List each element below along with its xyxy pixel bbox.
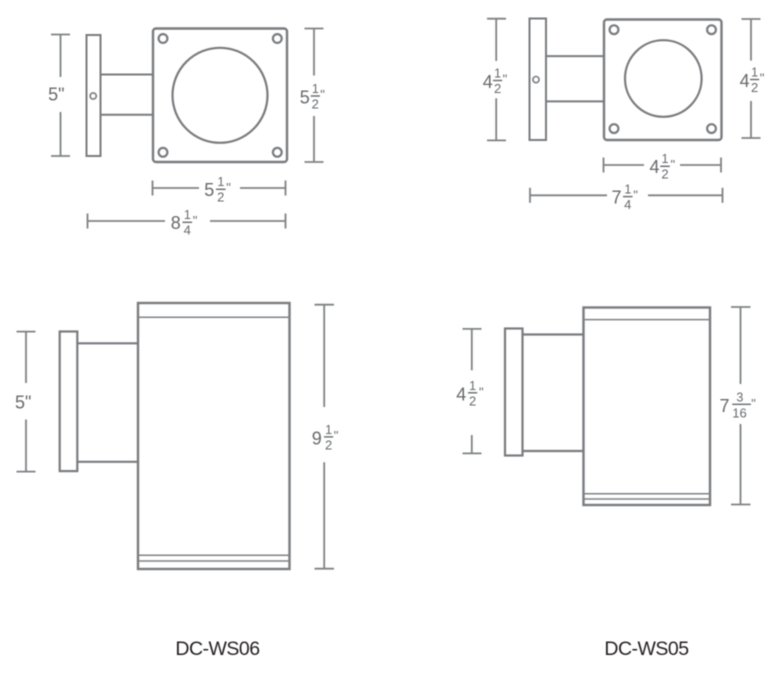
svg-text:1: 1 xyxy=(312,82,319,96)
svg-text:2: 2 xyxy=(312,97,319,112)
svg-text:DC-WS05: DC-WS05 xyxy=(604,638,689,660)
svg-text:5": 5" xyxy=(48,85,64,105)
svg-text:7: 7 xyxy=(611,187,621,207)
svg-text:8: 8 xyxy=(171,213,181,233)
svg-text:4: 4 xyxy=(456,384,466,404)
svg-text:2: 2 xyxy=(469,393,476,408)
svg-text:1: 1 xyxy=(624,182,631,196)
svg-text:": " xyxy=(226,180,231,195)
svg-text:1: 1 xyxy=(494,67,501,81)
svg-text:": " xyxy=(320,87,325,102)
svg-text:7: 7 xyxy=(719,396,729,416)
svg-text:": " xyxy=(671,157,676,172)
svg-text:2: 2 xyxy=(494,81,501,96)
svg-text:2: 2 xyxy=(661,167,668,182)
svg-text:1: 1 xyxy=(751,66,758,80)
svg-text:1: 1 xyxy=(469,379,476,393)
svg-text:4: 4 xyxy=(184,223,191,238)
svg-text:": " xyxy=(751,396,756,411)
svg-text:1: 1 xyxy=(662,152,669,166)
svg-text:16: 16 xyxy=(732,406,746,421)
svg-text:DC-WS06: DC-WS06 xyxy=(175,638,259,660)
svg-text:2: 2 xyxy=(325,437,332,452)
svg-text:4: 4 xyxy=(740,71,750,91)
svg-text:4: 4 xyxy=(624,197,631,212)
svg-text:4: 4 xyxy=(649,157,659,177)
svg-text:9: 9 xyxy=(312,428,322,448)
svg-text:5: 5 xyxy=(300,88,310,108)
svg-text:": " xyxy=(479,384,484,399)
svg-text:5": 5" xyxy=(15,392,31,412)
svg-text:": " xyxy=(503,72,508,87)
svg-text:1: 1 xyxy=(184,208,191,222)
svg-text:": " xyxy=(633,187,638,202)
svg-text:": " xyxy=(193,213,198,228)
svg-text:2: 2 xyxy=(751,80,758,95)
svg-text:4: 4 xyxy=(483,72,493,92)
svg-text:3: 3 xyxy=(736,391,743,405)
svg-text:": " xyxy=(334,428,339,443)
svg-text:1: 1 xyxy=(217,175,224,189)
svg-text:2: 2 xyxy=(217,190,224,205)
svg-text:": " xyxy=(760,71,765,86)
svg-text:1: 1 xyxy=(325,423,332,437)
svg-text:5: 5 xyxy=(204,180,214,200)
